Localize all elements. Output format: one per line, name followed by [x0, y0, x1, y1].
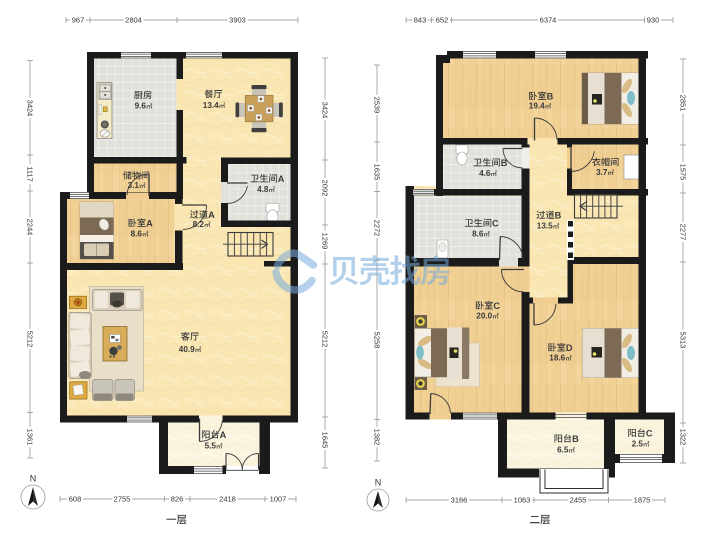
svg-text:A: A: [220, 430, 227, 440]
svg-text:1635: 1635: [372, 164, 381, 181]
svg-text:3.7: 3.7: [596, 168, 608, 177]
svg-text:930: 930: [647, 16, 660, 25]
svg-text:1117: 1117: [25, 166, 34, 182]
svg-text:6.5: 6.5: [557, 446, 569, 455]
svg-text:1645: 1645: [320, 432, 329, 449]
svg-text:B: B: [501, 158, 508, 168]
svg-text:608: 608: [69, 495, 82, 504]
svg-text:2804: 2804: [125, 16, 142, 25]
svg-text:3424: 3424: [320, 102, 329, 119]
svg-text:4.8: 4.8: [257, 185, 269, 194]
svg-text:8.6: 8.6: [472, 230, 484, 239]
svg-text:1322: 1322: [678, 429, 687, 446]
svg-text:C: C: [493, 301, 500, 311]
svg-text:18.6: 18.6: [549, 354, 565, 363]
svg-text:3903: 3903: [229, 16, 246, 25]
svg-text:2.5: 2.5: [632, 440, 644, 449]
svg-text:2092: 2092: [320, 180, 329, 197]
svg-text:3166: 3166: [451, 496, 468, 505]
svg-text:2539: 2539: [372, 97, 381, 114]
svg-text:1575: 1575: [678, 164, 687, 181]
svg-text:A: A: [208, 210, 215, 220]
svg-text:8.2: 8.2: [193, 220, 205, 229]
svg-text:1269: 1269: [320, 233, 329, 250]
svg-text:40.9: 40.9: [179, 345, 195, 354]
svg-text:2418: 2418: [219, 495, 236, 504]
svg-text:B: B: [547, 91, 554, 101]
svg-text:B: B: [555, 210, 562, 220]
svg-text:1875: 1875: [634, 496, 651, 505]
svg-text:1361: 1361: [25, 429, 34, 446]
svg-text:1007: 1007: [270, 495, 287, 504]
svg-text:967: 967: [72, 16, 85, 25]
svg-text:3424: 3424: [25, 100, 34, 117]
svg-text:B: B: [572, 434, 579, 444]
svg-text:20.0: 20.0: [476, 312, 492, 321]
svg-text:C: C: [646, 428, 653, 438]
svg-text:2277: 2277: [678, 224, 687, 241]
svg-text:2455: 2455: [570, 496, 587, 505]
svg-text:4.6: 4.6: [479, 169, 491, 178]
svg-text:13.5: 13.5: [537, 222, 553, 231]
svg-text:D: D: [566, 343, 573, 353]
svg-text:5258: 5258: [372, 332, 381, 349]
svg-text:5313: 5313: [678, 332, 687, 349]
svg-text:5.5: 5.5: [205, 442, 217, 451]
svg-text:5212: 5212: [320, 331, 329, 348]
svg-text:N: N: [375, 478, 382, 488]
svg-text:3.1: 3.1: [128, 181, 140, 190]
svg-text:6374: 6374: [540, 16, 557, 25]
svg-text:C: C: [492, 218, 499, 228]
svg-text:2755: 2755: [114, 495, 131, 504]
svg-text:9.6: 9.6: [135, 102, 147, 111]
svg-text:A: A: [146, 218, 153, 228]
svg-text:13.4: 13.4: [203, 101, 219, 110]
svg-text:8.6: 8.6: [131, 230, 143, 239]
svg-text:2272: 2272: [372, 220, 381, 237]
svg-text:1063: 1063: [514, 496, 531, 505]
svg-text:826: 826: [171, 495, 184, 504]
svg-text:652: 652: [436, 16, 449, 25]
svg-text:N: N: [30, 474, 37, 484]
svg-text:5212: 5212: [25, 331, 34, 348]
svg-text:2244: 2244: [25, 219, 34, 236]
svg-text:2851: 2851: [678, 95, 687, 112]
svg-text:19.4: 19.4: [529, 102, 545, 111]
svg-text:1382: 1382: [372, 429, 381, 446]
svg-text:843: 843: [414, 16, 427, 25]
svg-text:A: A: [278, 174, 285, 184]
